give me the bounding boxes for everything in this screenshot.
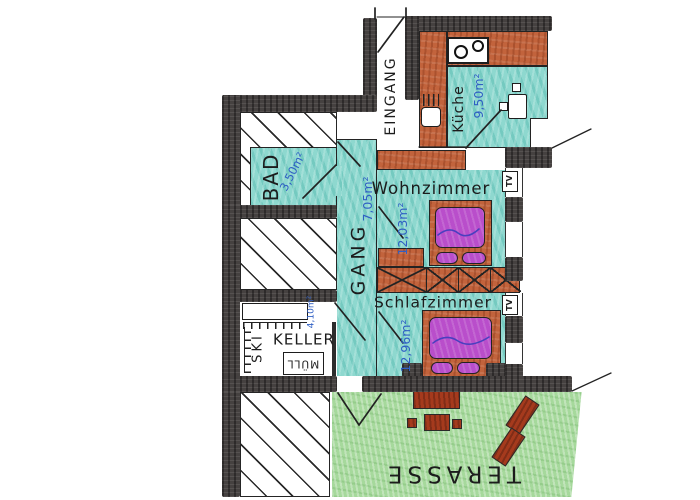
area-schlafzimmer: 12,96m² — [400, 320, 413, 373]
sofa-pillow-right — [462, 252, 486, 264]
area-wohnzimmer: 12,03m² — [397, 203, 410, 256]
label-terrasse: TERASSE — [383, 462, 521, 485]
kitchen-radiator — [421, 107, 441, 127]
wall-top — [405, 16, 552, 31]
wardrobe-row — [377, 267, 520, 293]
right-wall-segment-1 — [505, 197, 523, 222]
wall-topleft — [222, 95, 377, 112]
wall-bottom-left — [222, 376, 337, 392]
label-keller: KELLER — [273, 333, 335, 348]
area-kueche: 9,50m² — [473, 73, 486, 118]
label-bad: BAD — [261, 153, 281, 202]
entrance-door-leaf — [378, 17, 404, 52]
area-keller: 4,10m² — [308, 296, 317, 328]
right-wall-window-4 — [505, 343, 523, 364]
stove-burner-right — [472, 40, 484, 52]
keller-shelf — [242, 303, 308, 320]
terrace-chair-right — [452, 419, 462, 429]
sofa-pillow-left — [436, 252, 458, 264]
kitchen-corner-notch — [530, 118, 548, 148]
wardrobe-box — [458, 268, 490, 292]
keller-hook-rail — [243, 322, 307, 329]
wall-kitchen-divider — [505, 147, 552, 168]
bed-pillow-left — [431, 362, 453, 374]
double-bed — [429, 317, 492, 359]
label-schlafzimmer: Schlafzimmer — [374, 295, 492, 311]
hatched-area-middle — [240, 218, 337, 290]
wardrobe-box — [426, 268, 458, 292]
sketch-line-lower — [572, 373, 611, 391]
kitchen-sink-small-1 — [512, 83, 521, 92]
kitchen-radiator-fins — [423, 94, 439, 106]
stove — [447, 37, 489, 64]
bed-pillow-right — [457, 362, 480, 374]
right-wall-segment-4 — [505, 364, 523, 392]
stove-burner-left — [454, 45, 468, 59]
right-wall-window-2 — [505, 222, 523, 257]
terrace-table — [424, 414, 450, 431]
right-wall-segment-3 — [505, 316, 523, 343]
hatched-area-bottom — [240, 392, 330, 497]
right-wall-segment-2 — [505, 257, 523, 281]
label-kueche: Küche — [452, 85, 466, 133]
label-tv-schlafzimmer: TV — [506, 299, 514, 311]
sofa-bed — [435, 207, 485, 248]
label-ski: SKI — [252, 333, 265, 363]
label-tv-wohnzimmer: TV — [506, 175, 514, 187]
sofa-frame — [429, 200, 492, 266]
wall-entrance-right — [405, 16, 419, 100]
kitchen-counter-left — [419, 31, 447, 148]
wohnzimmer-sideboard — [377, 150, 466, 170]
wall-entrance-left — [363, 18, 377, 103]
label-gang: GANG — [350, 223, 369, 296]
terrace-chair-left — [407, 418, 417, 428]
kitchen-sink — [508, 94, 527, 119]
wardrobe-box — [378, 268, 426, 292]
kitchen-sink-small-2 — [499, 102, 508, 111]
wall-mid-2 — [222, 290, 337, 302]
label-muell: MÜLL — [287, 358, 319, 369]
label-wohnzimmer: Wohnzimmer — [372, 181, 491, 198]
wall-bottom-right — [362, 376, 572, 392]
bad-door-opening — [334, 166, 342, 196]
label-eingang: EINGANG — [384, 56, 398, 135]
terrace-bench — [413, 390, 460, 409]
sketch-line-upper — [552, 129, 591, 148]
window-pier-right — [486, 363, 506, 377]
floor-plan: EINGANG Küche 9,50m² BAD 3,50m² GANG 7,0… — [0, 0, 700, 500]
wall-mid-1 — [222, 205, 337, 218]
